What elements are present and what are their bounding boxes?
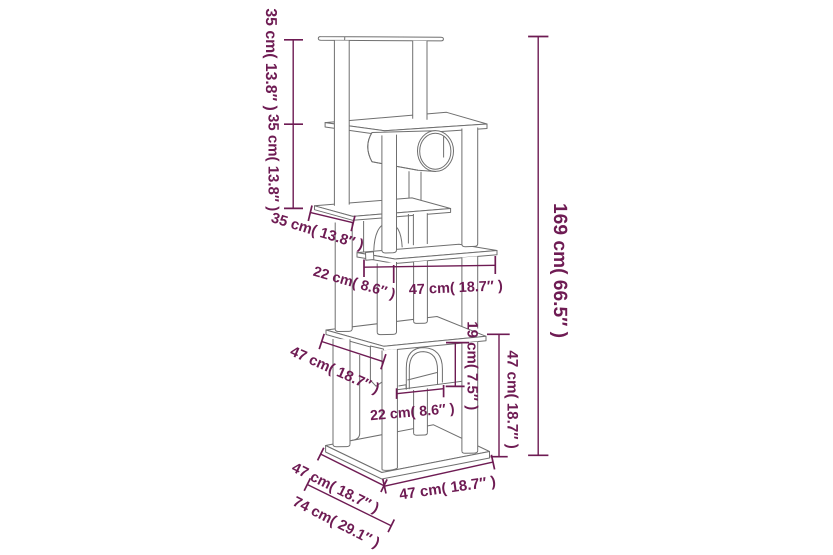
svg-text:47 cm( 18.7″ ): 47 cm( 18.7″ ) xyxy=(504,350,521,448)
svg-text:169 cm( 66.5″ ): 169 cm( 66.5″ ) xyxy=(549,203,570,338)
svg-text:35 cm( 13.8″ ): 35 cm( 13.8″ ) xyxy=(265,114,282,211)
svg-text:35 cm( 13.8″ ): 35 cm( 13.8″ ) xyxy=(262,8,279,110)
svg-text:19 cm( 7.5″ ): 19 cm( 7.5″ ) xyxy=(464,321,481,410)
